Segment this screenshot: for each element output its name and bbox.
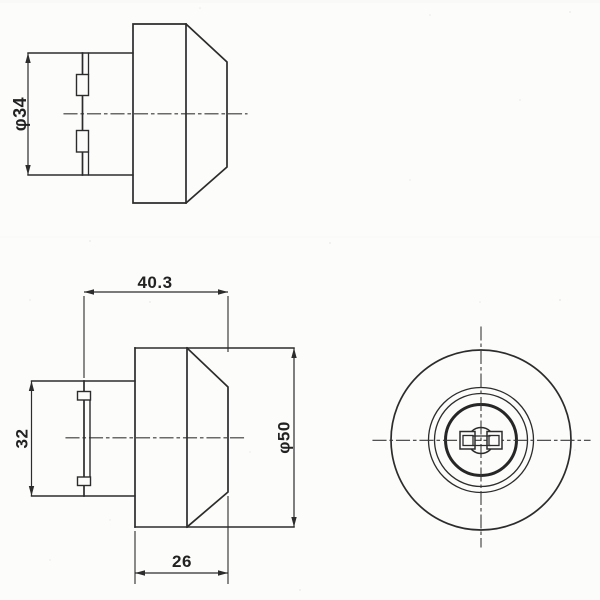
end-view	[373, 327, 590, 547]
dimension-26: 26	[135, 496, 228, 584]
dim-phi34-label: φ34	[10, 97, 30, 131]
scan-speckles	[0, 0, 600, 591]
dim-32-label: 32	[13, 429, 32, 449]
dim-26-label: 26	[172, 552, 192, 571]
arrowhead-icon	[218, 289, 228, 294]
arrowhead-icon	[84, 289, 94, 294]
drawing-svg: φ34 40.3 32 φ50	[0, 0, 600, 600]
dimension-phi34: φ34	[10, 53, 31, 175]
technical-drawing-sheet: φ34 40.3 32 φ50	[0, 0, 600, 600]
dimension-phi50: φ50	[275, 348, 297, 527]
clip-tab-upper-front	[78, 392, 91, 401]
arrowhead-icon	[25, 165, 30, 175]
arrowhead-icon	[218, 570, 228, 575]
clip-tab-lower	[77, 131, 89, 153]
clip-tab-lower-front	[78, 477, 91, 486]
arrowhead-icon	[291, 348, 296, 358]
arrowhead-icon	[291, 517, 296, 527]
side-view-front	[32, 348, 295, 527]
side-view-top	[28, 24, 247, 203]
arrowhead-icon	[29, 381, 34, 391]
arrowhead-icon	[25, 53, 30, 63]
dimension-32: 32	[13, 381, 35, 496]
dim-40-3-label: 40.3	[137, 273, 172, 292]
arrowhead-icon	[135, 570, 145, 575]
dimension-40-3: 40.3	[84, 273, 228, 378]
arrowhead-icon	[29, 486, 34, 496]
clip-tab-upper	[77, 75, 89, 96]
dim-phi50-label: φ50	[275, 421, 294, 454]
